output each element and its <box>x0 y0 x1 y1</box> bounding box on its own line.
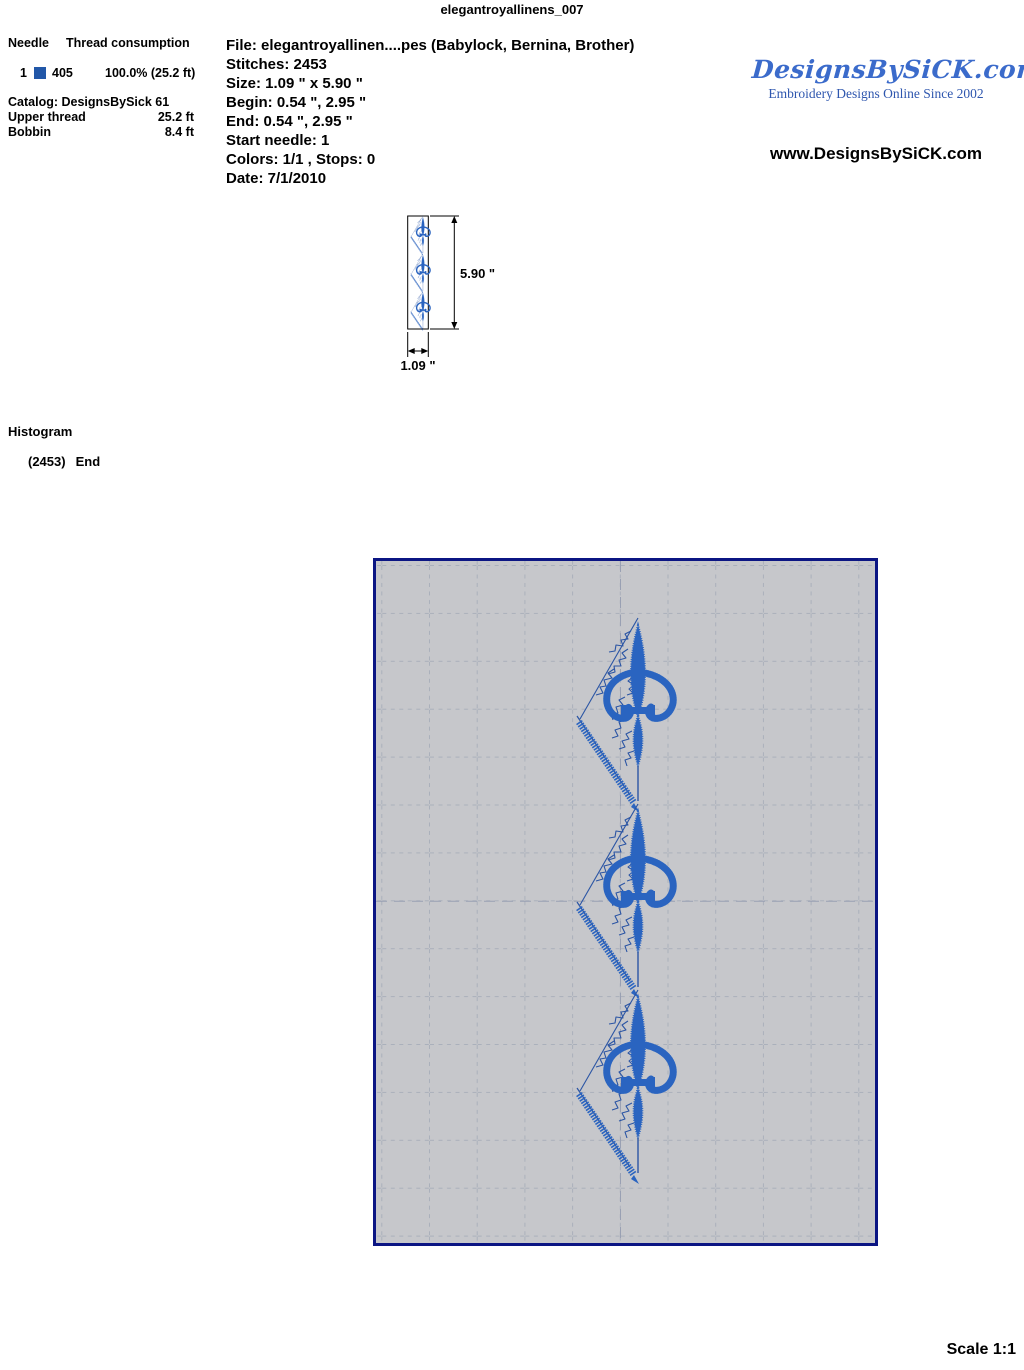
scale-label: Scale 1:1 <box>947 1341 1016 1359</box>
thumbnail-design <box>411 216 430 331</box>
width-dimension-lines <box>408 332 429 357</box>
fleur-de-lis-motif <box>411 254 430 293</box>
histogram-end-label: End <box>76 454 101 469</box>
thread-row: 1 405 100.0% (25.2 ft) <box>8 66 194 81</box>
arrow-down-icon <box>451 322 457 329</box>
end-line: End: 0.54 ", 2.95 " <box>226 112 746 131</box>
fleur-de-lis-motif <box>411 216 430 255</box>
needle-panel-header: Needle Thread consumption <box>8 36 194 51</box>
stitch-preview-panel <box>373 558 878 1246</box>
histogram-entry: (2453)End <box>28 454 100 469</box>
upper-thread-label: Upper thread <box>8 110 86 125</box>
bobbin-value: 8.4 ft <box>165 125 194 140</box>
arrow-left-icon <box>408 348 415 354</box>
fleur-de-lis-motif <box>411 291 430 330</box>
file-info-block: File: elegantroyallinen....pes (Babylock… <box>226 36 746 188</box>
start-needle-line: Start needle: 1 <box>226 131 746 150</box>
colors-line: Colors: 1/1 , Stops: 0 <box>226 150 746 169</box>
needle-number: 1 <box>20 66 27 80</box>
needle-column-header: Needle <box>8 36 49 50</box>
date-line: Date: 7/1/2010 <box>226 169 746 188</box>
histogram-heading: Histogram <box>8 424 72 439</box>
print-preview-page: elegantroyallinens_007 Needle Thread con… <box>0 0 1024 1370</box>
file-name-line: File: elegantroyallinen....pes (Babylock… <box>226 36 746 55</box>
height-dimension-lines <box>430 216 459 329</box>
begin-line: Begin: 0.54 ", 2.95 " <box>226 93 746 112</box>
consumption-column-header: Thread consumption <box>66 36 190 50</box>
stitches-line: Stitches: 2453 <box>226 55 746 74</box>
needle-panel: Needle Thread consumption 1 405 100.0% (… <box>8 36 194 146</box>
bobbin-label: Bobbin <box>8 125 51 140</box>
site-url: www.DesignsBySiCK.com <box>752 144 1000 164</box>
height-dimension-label: 5.90 " <box>460 266 495 281</box>
thread-color-swatch <box>34 67 46 79</box>
stitch-preview-canvas <box>376 561 875 1243</box>
upper-thread-value: 25.2 ft <box>158 110 194 125</box>
catalog-line: Catalog: DesignsBySick 61 <box>8 95 194 110</box>
page-title: elegantroyallinens_007 <box>0 2 1024 17</box>
logo-tagline: Embroidery Designs Online Since 2002 <box>752 86 1000 102</box>
thread-usage: 100.0% (25.2 ft) <box>105 66 195 80</box>
arrow-right-icon <box>421 348 428 354</box>
width-dimension-label: 1.09 " <box>400 358 435 373</box>
thread-code: 405 <box>52 66 73 80</box>
dimension-thumbnail: 5.90 " 1.09 " <box>395 205 515 385</box>
arrow-up-icon <box>451 216 457 223</box>
upper-thread-line: Upper thread 25.2 ft <box>8 110 194 125</box>
designsbysick-logo: DesignsBySiCK.com <box>751 55 1001 84</box>
bobbin-line: Bobbin 8.4 ft <box>8 125 194 140</box>
size-line: Size: 1.09 " x 5.90 " <box>226 74 746 93</box>
histogram-stitch-count: (2453) <box>28 454 66 469</box>
